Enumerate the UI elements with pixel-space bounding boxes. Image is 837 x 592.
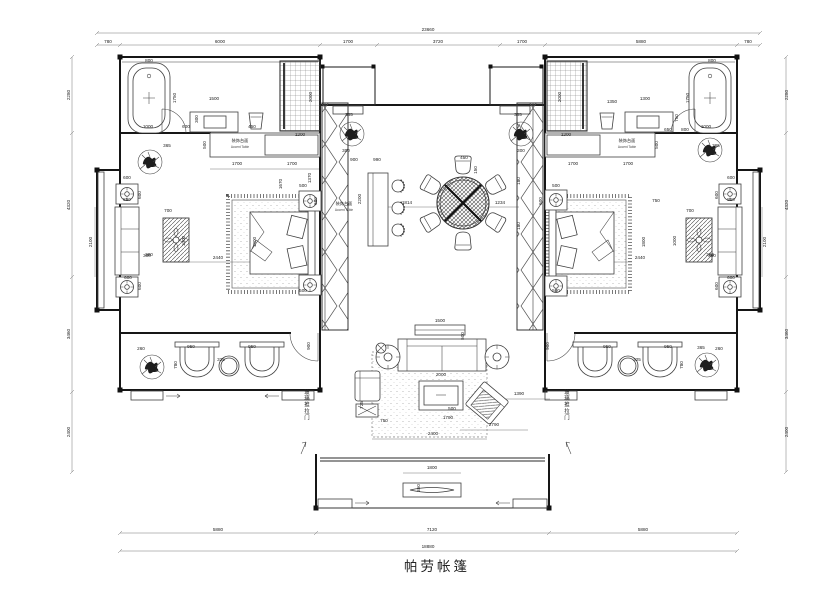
dim-label: 1790 [443, 415, 454, 420]
entry-porch-left [323, 67, 375, 105]
dim-label: 1000 [701, 124, 712, 129]
dim-label: 600 [714, 191, 719, 199]
dim-label: 325 [217, 357, 225, 362]
nightstand-right-bottom [545, 276, 567, 296]
dim-label: 260 [137, 346, 145, 351]
dim-label: 750 [380, 418, 388, 423]
dim-label: 300 [708, 253, 716, 258]
dim-label: 1370 [307, 172, 312, 183]
dim-label: 900 [350, 157, 358, 162]
dim-label: 5880 [636, 39, 647, 44]
dim-label: 1300 [640, 96, 651, 101]
dim-label: 350 [416, 484, 421, 492]
door-lounge-left [290, 333, 318, 361]
plant-lounge-left [140, 355, 164, 379]
accent-table-label-zh: 装饰台面 [336, 200, 353, 207]
dim-label: 2000 [557, 91, 562, 102]
living-room [355, 325, 509, 437]
dim-label: 1700 [343, 39, 354, 44]
dim-label: 1750 [172, 92, 177, 103]
dim-label: 1200 [561, 132, 572, 137]
vanity-stool-right [600, 113, 614, 129]
dim-label: 780 [679, 361, 684, 369]
dim-label: 600 [714, 282, 719, 290]
dim-label: 2200 [357, 193, 362, 204]
dim-label: 900 [306, 342, 311, 350]
lounge-left [140, 333, 318, 379]
lounge-chair [638, 342, 682, 377]
sliding-door-arrows [301, 442, 571, 454]
dim-label: 2400 [428, 431, 439, 436]
dim-label: 4320 [66, 199, 71, 210]
bathtub-right [689, 63, 731, 133]
dim-label: 1700 [232, 161, 243, 166]
dim-label: 600 [124, 275, 132, 280]
floor-plan-drawing: 装饰台面 Accent Table [0, 0, 837, 592]
dim-label: 2790 [489, 422, 500, 427]
dim-label: 300 [517, 148, 525, 153]
annotation-label: 玻璃推拉门 [563, 388, 570, 422]
dim-label: 1200 [295, 132, 306, 137]
plant-lounge-right [695, 353, 719, 377]
dim-label: 3460 [784, 328, 789, 339]
dim-label: 5880 [213, 527, 224, 532]
dim-label: 650 [664, 127, 672, 132]
dim-label: 600 [123, 175, 131, 180]
dim-label: 1700 [287, 161, 298, 166]
lounge-chair [175, 342, 219, 377]
dim-label: 500 [552, 183, 560, 188]
dim-label: 450 [248, 124, 256, 129]
dim-label: 950 [603, 344, 611, 349]
dim-label: 800 [681, 127, 689, 132]
annotation-label: 玻璃推拉门 [303, 388, 310, 422]
dim-label: 2280 [784, 89, 789, 100]
dim-label: 950 [187, 344, 195, 349]
dim-label: 800 [708, 58, 716, 63]
bedroom-left [163, 191, 321, 295]
headboard-right [549, 206, 556, 280]
bathtub-left [128, 63, 170, 133]
dim-label: 750 [674, 114, 679, 122]
porch-fire-table [403, 483, 461, 497]
dim-label: 1350 [607, 99, 618, 104]
dim-label: 1000 [672, 235, 677, 246]
dim-label: 23660 [422, 27, 435, 32]
lounge-chair [240, 342, 284, 377]
floor-plan-sheet: 装饰台面 Accent Table [0, 0, 837, 592]
accent-table-label-zh: 装饰台面 [232, 137, 249, 144]
dim-label: 325 [633, 357, 641, 362]
dim-label: 600 [727, 175, 735, 180]
plant-bathroom-right [698, 138, 722, 162]
dim-label: 2440 [213, 255, 224, 260]
dim-label: 1814 [402, 200, 413, 205]
porch-side-walls [316, 455, 549, 508]
dim-label: 500 [299, 183, 307, 188]
dim-label: 800 [145, 58, 153, 63]
chaise-chair [355, 371, 380, 401]
dim-label: 780 [744, 39, 752, 44]
dim-label: 850 [123, 197, 131, 202]
dim-label: 18880 [422, 544, 435, 549]
dim-label: 900 [545, 342, 550, 350]
accent-table-label-en: Accent Table [231, 145, 249, 149]
dim-label: 1700 [517, 39, 528, 44]
dim-label: 850 [727, 197, 735, 202]
drawing-title: 帕劳帐篷 [404, 559, 470, 575]
bar-counter [368, 173, 388, 246]
dim-label: 600 [727, 275, 735, 280]
nightstand-right-top [545, 190, 567, 210]
dim-label: 1670 [278, 178, 283, 189]
dim-label: 2100 [88, 236, 93, 247]
dim-label: 5880 [638, 527, 649, 532]
dim-label: 600 [182, 124, 190, 129]
dim-label: 1500 [209, 96, 220, 101]
dim-label: 2400 [784, 426, 789, 437]
shower-right [547, 61, 587, 131]
accent-table-label-zh: 装饰台面 [619, 137, 636, 144]
dim-label: 1750 [685, 92, 690, 103]
dim-label: 1800 [252, 236, 257, 247]
dim-label: 7120 [427, 527, 438, 532]
dim-label: 600 [313, 197, 318, 205]
bar-stool [392, 180, 404, 192]
accent-table-label-en: Accent Table [335, 208, 353, 212]
dim-label: 950 [248, 344, 256, 349]
dim-label: 500 [448, 406, 456, 411]
accent-table-label-en: Accent Table [618, 145, 636, 149]
bedroom-right [545, 190, 712, 296]
dim-label: 2280 [66, 89, 71, 100]
entry-porch-right [490, 67, 543, 105]
dim-label: 780 [173, 361, 178, 369]
dim-label: 500 [202, 141, 207, 149]
dim-label: 2000 [308, 91, 313, 102]
dim-label: 500 [654, 141, 659, 149]
dim-label: 1800 [427, 465, 438, 470]
dim-label: 2000 [436, 372, 447, 377]
dim-label: 3720 [433, 39, 444, 44]
dim-label: 1000 [181, 235, 186, 246]
dim-label: 180 [516, 177, 521, 185]
dim-label: 2440 [635, 255, 646, 260]
sofa-terrace-right [718, 207, 742, 275]
dim-label: 365 [712, 143, 720, 148]
sofa-terrace-left [115, 207, 139, 275]
dim-label: 500 [299, 288, 307, 293]
dim-label: 990 [373, 157, 381, 162]
dim-label: 365 [514, 112, 522, 117]
dim-label: 1700 [568, 161, 579, 166]
dining-chair [455, 232, 471, 250]
coffee-table [419, 381, 463, 410]
dim-label: 260 [715, 346, 723, 351]
dim-label: 600 [137, 282, 142, 290]
lamp-table [116, 277, 138, 297]
dim-label: 1234 [495, 200, 506, 205]
dim-label: 600 [538, 197, 543, 205]
dim-label: 500 [460, 332, 465, 340]
lattice-screen-left [322, 103, 348, 330]
dim-label: 1390 [514, 391, 525, 396]
dim-label: 2400 [66, 426, 71, 437]
dim-label: 4320 [784, 199, 789, 210]
dim-label: 780 [104, 39, 112, 44]
dim-label: 600 [137, 191, 142, 199]
bar-stool [392, 224, 404, 236]
lounge-right [547, 333, 719, 377]
dim-label: 1500 [435, 318, 446, 323]
dim-label: 300 [342, 148, 350, 153]
dim-label: 365 [163, 143, 171, 148]
lamp-table [719, 277, 741, 297]
dim-label: 180 [516, 222, 521, 230]
dim-label: 1700 [623, 161, 634, 166]
dim-label: 150 [473, 166, 478, 174]
dim-label: 700 [686, 208, 694, 213]
dim-label: 300 [194, 115, 199, 123]
dim-label: 700 [164, 208, 172, 213]
steps [98, 106, 759, 508]
dimension-chains [70, 31, 788, 553]
dim-label: 300 [143, 253, 151, 258]
headboard-left [308, 206, 315, 280]
dim-label: 3460 [66, 328, 71, 339]
dim-label: 500 [552, 288, 560, 293]
dim-label: 365 [345, 112, 353, 117]
dim-label: 750 [652, 198, 660, 203]
shower-left [280, 61, 320, 131]
dim-label: 1800 [641, 236, 646, 247]
plant-bathroom-left [138, 150, 162, 174]
dim-label: 1000 [143, 124, 154, 129]
dim-label: 725 [359, 401, 364, 409]
dim-label: 450 [460, 155, 468, 160]
dim-label: 950 [664, 344, 672, 349]
dim-label: 2100 [762, 236, 767, 247]
door-lounge-right [547, 333, 575, 361]
dim-label: 365 [697, 345, 705, 350]
dim-label: 6000 [215, 39, 226, 44]
